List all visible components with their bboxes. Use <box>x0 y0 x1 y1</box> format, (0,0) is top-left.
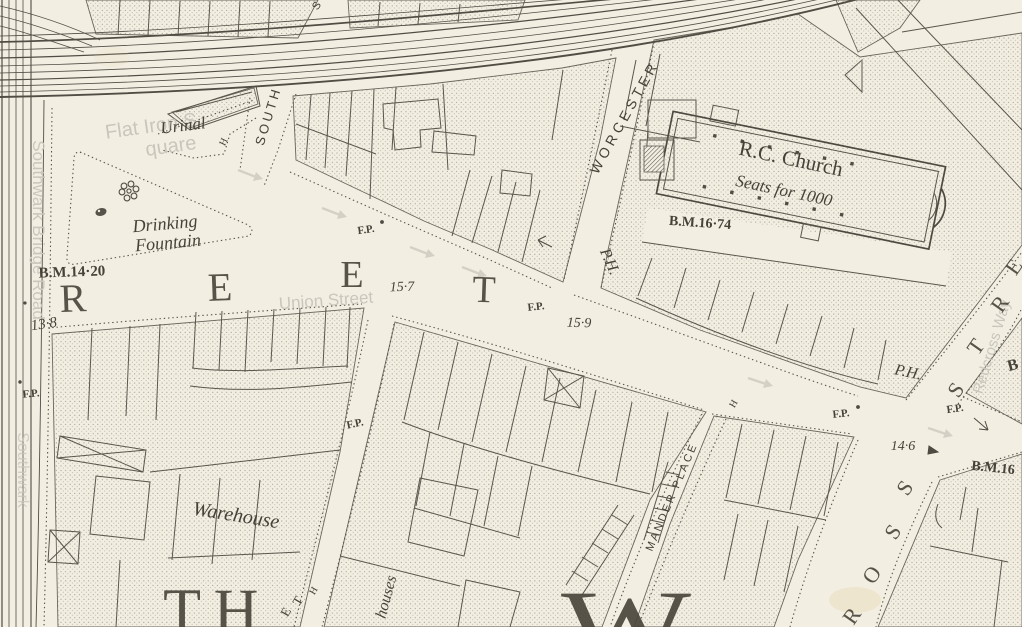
spot-height-14-6: 14·6 <box>891 439 916 455</box>
street-letter-reet-e1: E <box>207 263 233 311</box>
fp-label-6: F.P. <box>946 402 964 416</box>
fp-label-5: F.P. <box>832 407 850 421</box>
map-geometry <box>0 0 1022 627</box>
giant-letter-t: T <box>163 577 201 627</box>
giant-letter-w: W <box>561 567 691 627</box>
giant-letter-h: H <box>214 577 259 627</box>
street-letter-reet-t: T <box>472 268 497 313</box>
drinking-fountain-symbol <box>119 181 139 201</box>
building-blocks <box>52 0 1022 627</box>
fountain-basin-symbol <box>95 207 108 217</box>
historic-os-map-canvas[interactable]: Flat Iron S quare Southwark Bridge Road … <box>0 0 1022 627</box>
overlay-southwark-bridge-road: Southwark Bridge Road <box>28 140 48 320</box>
overlay-southwark-fragment: Southwark <box>13 432 31 508</box>
fp-label-2: F.P. <box>357 223 375 237</box>
fp-label-3: F.P. <box>527 300 545 314</box>
street-letter-reet-r: R <box>59 274 87 322</box>
spot-height-13-8: 13·8 <box>30 315 58 335</box>
spot-height-15-7: 15·7 <box>389 280 414 297</box>
spot-height-15-9: 15·9 <box>566 316 591 333</box>
fp-label-1: F.P. <box>22 387 40 400</box>
street-letter-reet-e2: E <box>340 253 363 297</box>
